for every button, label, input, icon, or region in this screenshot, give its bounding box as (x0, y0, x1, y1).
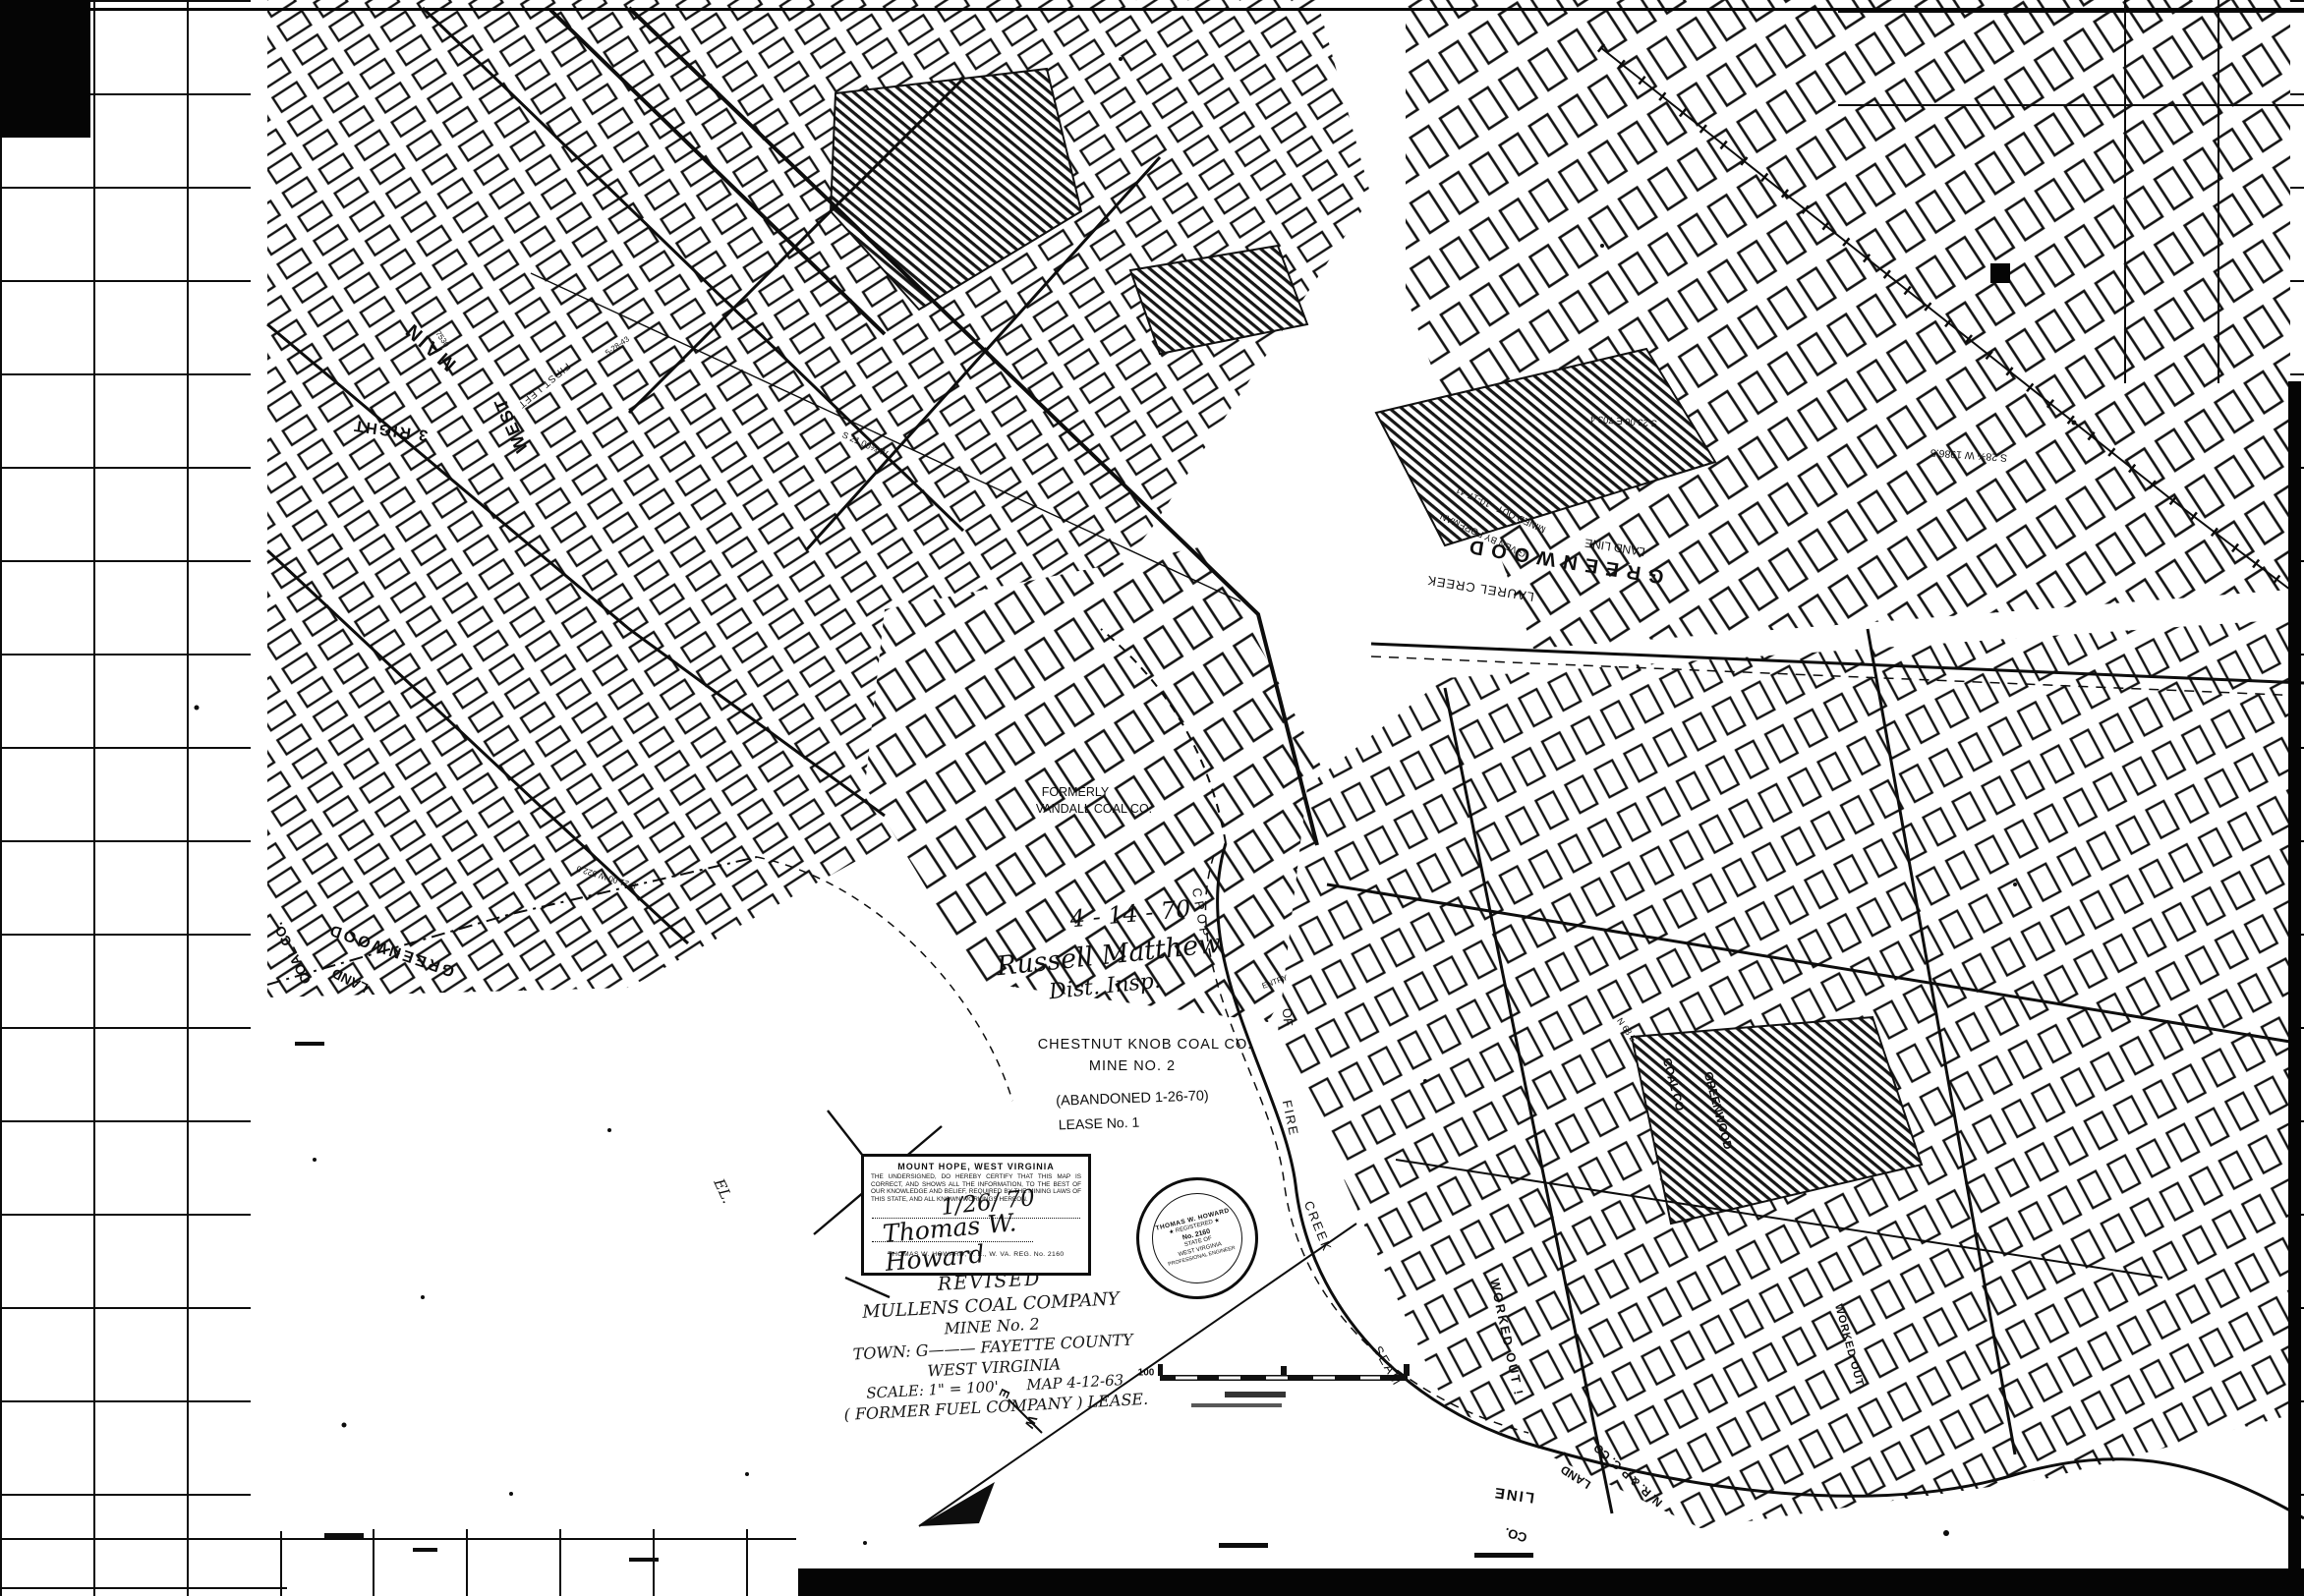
seal-number: No. 2160 (1181, 1227, 1211, 1242)
seal-registered: ★ REGISTERED ★ (1169, 1218, 1221, 1237)
stamp-handwritten-signature: Thomas W. Howard (882, 1202, 1090, 1277)
label-lease-no-1: LEASE No. 1 (1058, 1114, 1139, 1133)
scanned-mine-map-page: { "document": { "type": "scanned coal mi… (0, 0, 2304, 1596)
label-vandall-coal-co: VANDALL COAL CO. (1036, 802, 1152, 816)
certification-stamp-box: MOUNT HOPE, WEST VIRGINIA THE UNDERSIGNE… (861, 1154, 1091, 1276)
seal-state-name: WEST VIRGINIA (1178, 1241, 1223, 1259)
label-of: OF (1280, 1007, 1296, 1026)
seal-state-of: STATE OF (1184, 1236, 1213, 1250)
seal-name: THOMAS W. HOWARD (1155, 1207, 1231, 1233)
label-formerly: FORMERLY (1042, 785, 1110, 799)
revision-note-block: REVISED MULLENS COAL COMPANY MINE No. 2 … (773, 1259, 1212, 1430)
stamp-heading: MOUNT HOPE, WEST VIRGINIA (864, 1162, 1088, 1171)
label-chestnut-knob-coal-co: CHESTNUT KNOB COAL CO. (1038, 1037, 1253, 1053)
label-mine-no-2: MINE NO. 2 (1089, 1058, 1176, 1074)
seal-profession: PROFESSIONAL ENGINEER (1168, 1245, 1237, 1268)
